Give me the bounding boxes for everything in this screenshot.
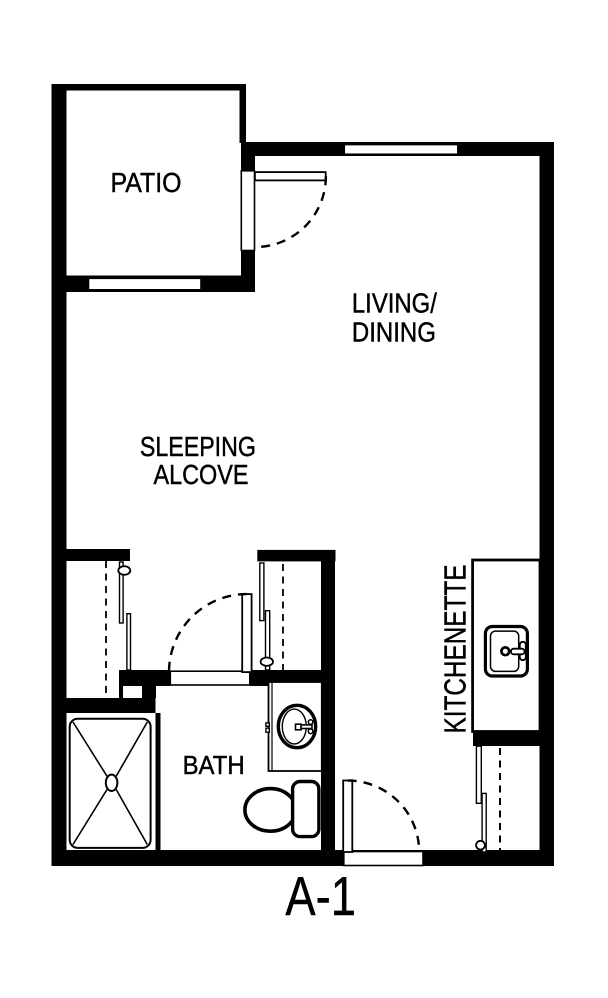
svg-text:PATIO: PATIO: [111, 167, 182, 198]
svg-text:DINING: DINING: [352, 316, 436, 347]
svg-text:LIVING/: LIVING/: [352, 288, 437, 319]
svg-text:BATH: BATH: [183, 750, 245, 780]
svg-text:ALCOVE: ALCOVE: [154, 459, 249, 490]
svg-text:KITCHENETTE: KITCHENETTE: [437, 565, 472, 734]
svg-text:A-1: A-1: [285, 865, 356, 927]
svg-text:SLEEPING: SLEEPING: [140, 431, 256, 462]
